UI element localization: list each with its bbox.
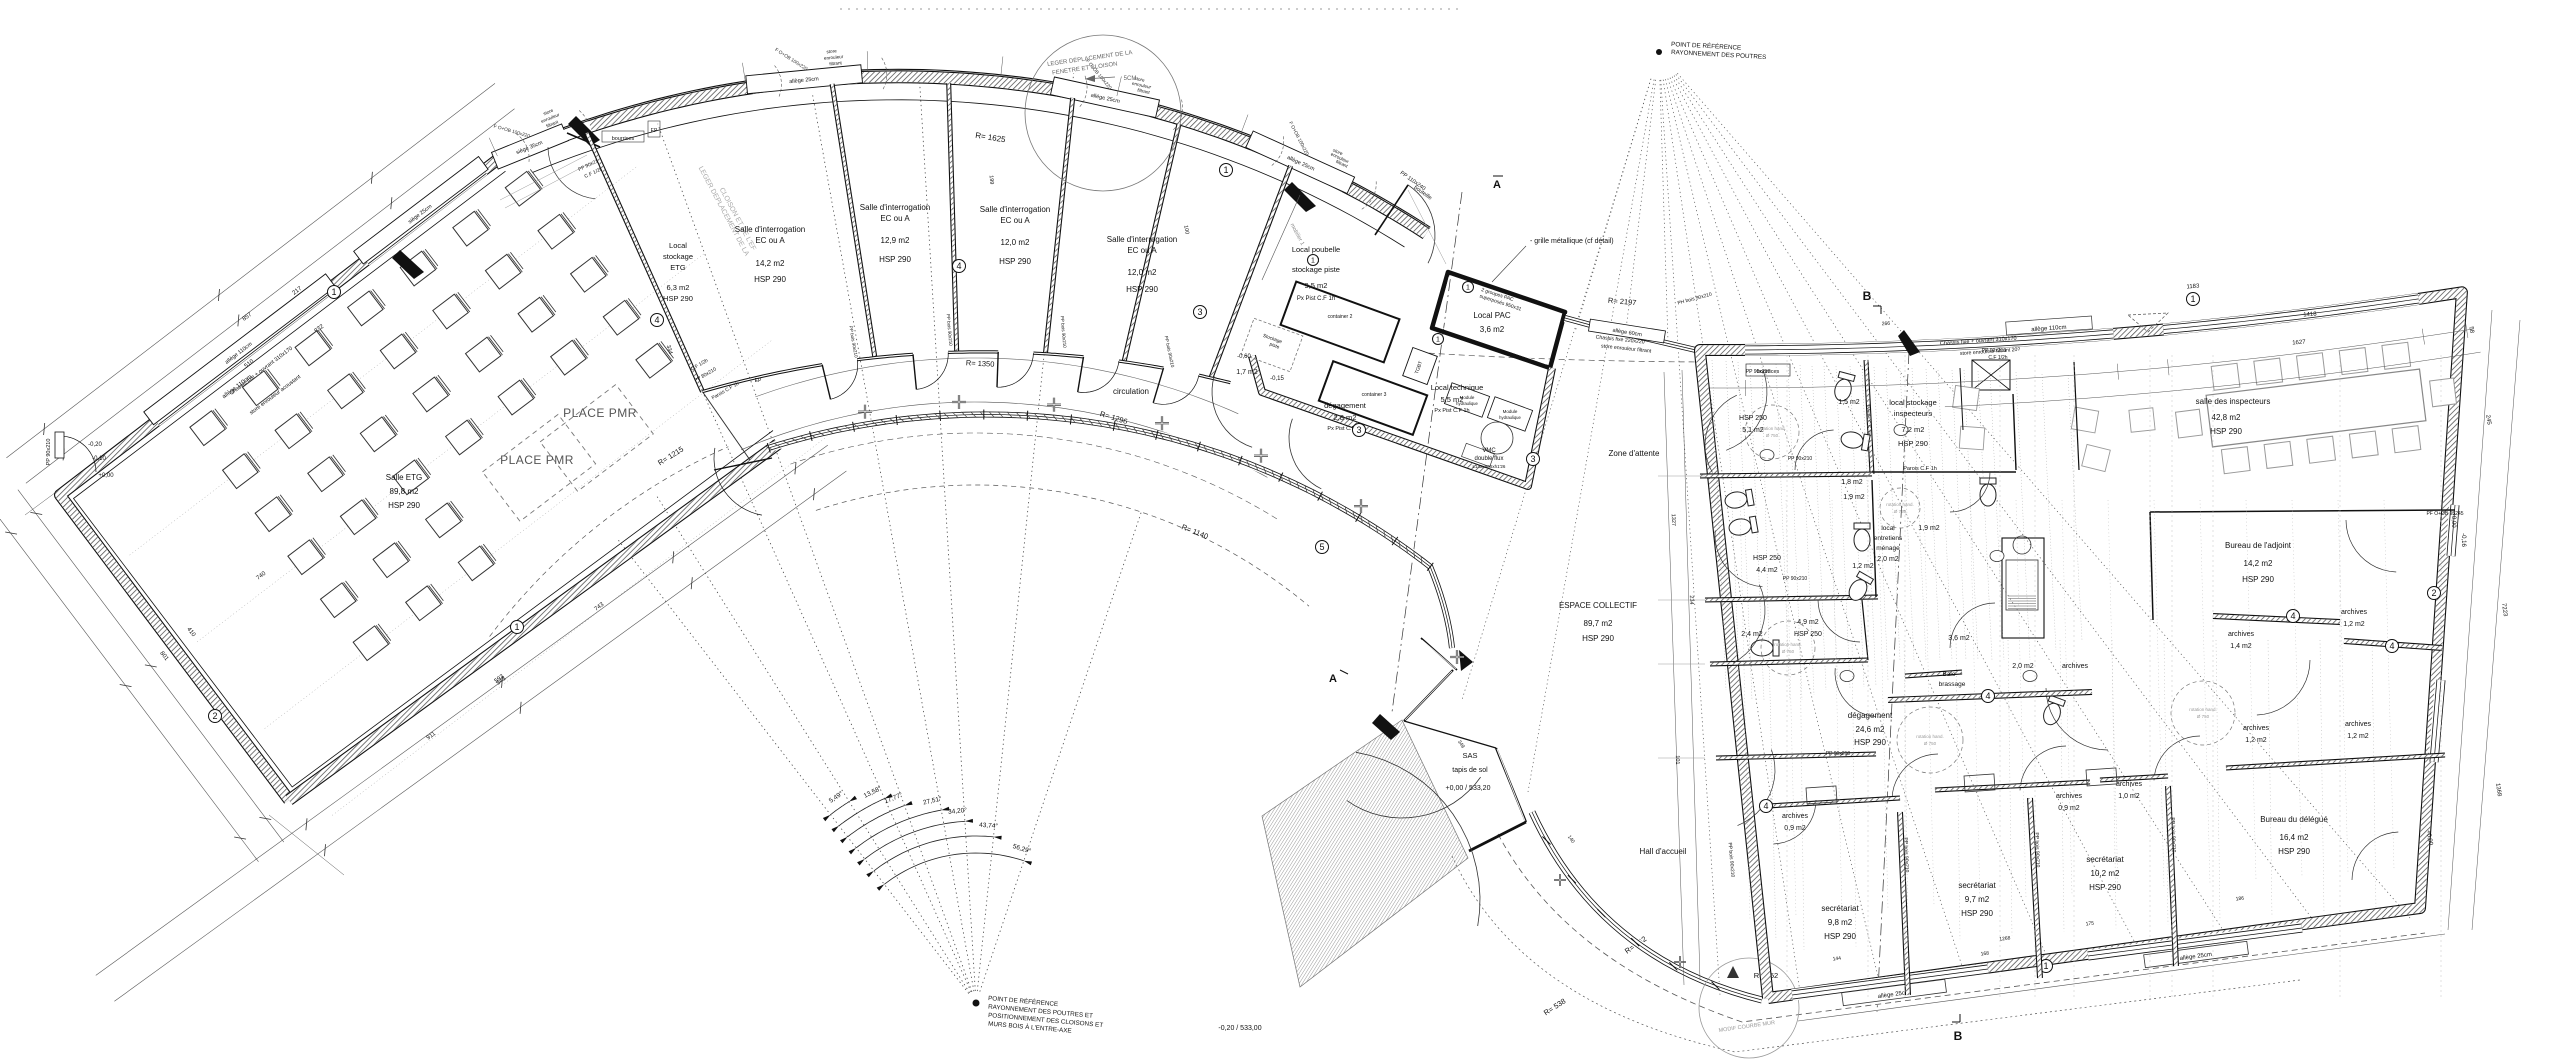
svg-text:HSP 290: HSP 290 <box>1582 634 1614 643</box>
svg-text:Baie: Baie <box>1942 671 1955 678</box>
svg-text:PLACE PMR: PLACE PMR <box>500 453 574 467</box>
svg-text:Local PAC: Local PAC <box>1473 311 1510 320</box>
svg-text:stockage piste: stockage piste <box>1292 265 1340 274</box>
svg-text:HSP 290: HSP 290 <box>754 275 786 284</box>
svg-text:Local: Local <box>669 241 687 250</box>
svg-text:2,0 m2: 2,0 m2 <box>1877 556 1899 563</box>
svg-text:+0,00: +0,00 <box>98 473 114 479</box>
svg-text:1,9 m2: 1,9 m2 <box>1843 494 1865 501</box>
svg-text:VMC: VMC <box>1482 448 1496 454</box>
svg-text:PP 90x210: PP 90x210 <box>1746 369 1771 375</box>
svg-text:4: 4 <box>2290 611 2295 621</box>
svg-text:HSP 290: HSP 290 <box>879 255 911 264</box>
svg-text:L14äx965xh1'26: L14äx965xh1'26 <box>1473 464 1506 469</box>
svg-text:Bureau de l'adjoint: Bureau de l'adjoint <box>2225 541 2292 550</box>
svg-text:-0,15: -0,15 <box>1270 376 1284 382</box>
svg-text:ménage: ménage <box>1876 545 1900 552</box>
svg-text:3: 3 <box>1530 454 1535 464</box>
svg-text:local: local <box>1881 525 1895 532</box>
svg-text:ETG: ETG <box>670 263 686 272</box>
svg-text:C.F 1/2h: C.F 1/2h <box>1988 355 2007 361</box>
svg-text:4: 4 <box>956 261 961 271</box>
svg-text:Ø 750: Ø 750 <box>2197 714 2210 719</box>
svg-text:3: 3 <box>1356 425 1361 435</box>
svg-text:EP: EP <box>755 378 762 384</box>
svg-text:HSP 290: HSP 290 <box>999 257 1031 266</box>
svg-text:1,0 m2: 1,0 m2 <box>2118 793 2140 800</box>
svg-text:144: 144 <box>1832 955 1841 962</box>
svg-text:+0,00 / 533,20: +0,00 / 533,20 <box>1446 785 1491 792</box>
svg-text:266: 266 <box>1882 321 1891 328</box>
svg-text:42,8 m2: 42,8 m2 <box>2212 413 2241 422</box>
svg-text:1627: 1627 <box>2292 339 2306 346</box>
svg-text:archives: archives <box>2062 663 2089 670</box>
svg-text:EP: EP <box>651 128 658 134</box>
svg-text:archives: archives <box>1782 813 1809 820</box>
svg-text:101: 101 <box>1674 755 1680 764</box>
svg-text:12,9 m2: 12,9 m2 <box>881 236 910 245</box>
svg-text:4,9 m2: 4,9 m2 <box>1797 619 1819 626</box>
svg-text:1418: 1418 <box>2303 311 2317 318</box>
svg-text:1: 1 <box>1223 165 1228 175</box>
svg-text:2,4 m2: 2,4 m2 <box>1741 631 1763 638</box>
svg-text:HSP 250: HSP 250 <box>1739 415 1767 422</box>
svg-text:HSP 290: HSP 290 <box>2089 883 2121 892</box>
svg-text:1: 1 <box>1311 258 1315 265</box>
svg-text:PP 90x210: PP 90x210 <box>1783 576 1808 582</box>
svg-text:tapis de sol: tapis de sol <box>1452 767 1488 774</box>
svg-text:-0,20: -0,20 <box>88 442 102 448</box>
svg-text:entretiens: entretiens <box>1874 535 1903 542</box>
svg-text:9,7 m2: 9,7 m2 <box>1965 895 1990 904</box>
svg-text:14,2 m2: 14,2 m2 <box>756 259 785 268</box>
svg-text:secrétariat: secrétariat <box>2086 855 2124 864</box>
svg-text:secrétariat: secrétariat <box>1958 881 1996 890</box>
svg-text:-0,20 / 533,00: -0,20 / 533,00 <box>1218 1025 1261 1032</box>
svg-text:Salle ETG: Salle ETG <box>386 473 422 482</box>
svg-text:24,6 m2: 24,6 m2 <box>1856 725 1885 734</box>
svg-text:container 3: container 3 <box>1362 392 1387 398</box>
svg-text:4: 4 <box>1985 691 1990 701</box>
svg-text:1,2 m2: 1,2 m2 <box>2347 733 2369 740</box>
svg-text:inspecteurs: inspecteurs <box>1894 409 1933 418</box>
svg-text:Salle d'interrogation: Salle d'interrogation <box>735 225 805 234</box>
svg-text:168: 168 <box>1980 950 1989 957</box>
svg-text:HSP 290: HSP 290 <box>1961 909 1993 918</box>
svg-text:Ø 750: Ø 750 <box>1894 509 1907 514</box>
svg-text:0,9 m2: 0,9 m2 <box>2058 805 2080 812</box>
svg-text:PP 90x210: PP 90x210 <box>1982 348 2007 354</box>
svg-text:2,8 m2: 2,8 m2 <box>1334 413 1357 422</box>
svg-text:B: B <box>1863 289 1872 303</box>
svg-text:1,2 m2: 1,2 m2 <box>1852 563 1874 570</box>
svg-text:12,0 m2: 12,0 m2 <box>1001 238 1030 247</box>
svg-text:Px Pist C.F 1h: Px Pist C.F 1h <box>1434 408 1469 414</box>
svg-text:PP bois 90x210: PP bois 90x210 <box>2033 832 2040 867</box>
svg-text:archives: archives <box>2341 609 2368 616</box>
svg-text:HSP 250: HSP 250 <box>1753 555 1781 562</box>
svg-text:brassage: brassage <box>1939 681 1966 688</box>
svg-text:1183: 1183 <box>2186 284 2200 291</box>
svg-text:1,4 m2: 1,4 m2 <box>2230 643 2252 650</box>
svg-text:- grille métallique (cf détail: - grille métallique (cf détail) <box>1530 238 1614 245</box>
svg-text:Parois C.F 1h: Parois C.F 1h <box>1903 466 1937 472</box>
svg-text:Zone d'attente: Zone d'attente <box>1609 449 1660 458</box>
svg-text:1,8 m2: 1,8 m2 <box>1841 479 1863 486</box>
svg-text:HSP 290: HSP 290 <box>2242 575 2274 584</box>
svg-text:1: 1 <box>1466 285 1470 292</box>
svg-text:4: 4 <box>2389 641 2394 651</box>
svg-text:1: 1 <box>1436 337 1440 344</box>
svg-text:10,2 m2: 10,2 m2 <box>2091 869 2120 878</box>
svg-text:HSP 290: HSP 290 <box>1824 932 1856 941</box>
svg-text:PLACE PMR: PLACE PMR <box>563 406 637 420</box>
svg-text:1,9 m2: 1,9 m2 <box>1918 525 1940 532</box>
svg-text:2: 2 <box>212 711 217 721</box>
svg-text:1: 1 <box>2190 294 2195 304</box>
svg-text:archives: archives <box>2345 721 2372 728</box>
svg-text:+0,00: +0,00 <box>2450 512 2456 528</box>
svg-text:4,4 m2: 4,4 m2 <box>1756 567 1778 574</box>
svg-text:R= 1350: R= 1350 <box>966 358 995 368</box>
svg-text:1,5 m2: 1,5 m2 <box>1838 399 1860 406</box>
svg-text:1,2 m2: 1,2 m2 <box>2245 737 2267 744</box>
svg-text:Salle d'interrogation: Salle d'interrogation <box>980 205 1050 214</box>
svg-text:5: 5 <box>1319 542 1324 552</box>
svg-text:186: 186 <box>2235 895 2244 902</box>
svg-text:local stockage: local stockage <box>1889 398 1937 407</box>
svg-text:14,2 m2: 14,2 m2 <box>2244 559 2273 568</box>
svg-text:PP bois 90x210: PP bois 90x210 <box>1902 837 1909 872</box>
svg-text:Module: Module <box>1503 409 1518 414</box>
svg-text:HSP 290: HSP 290 <box>388 501 420 510</box>
svg-text:HSP 290: HSP 290 <box>1126 285 1158 294</box>
svg-text:archives: archives <box>2243 725 2270 732</box>
svg-text:stockage: stockage <box>663 252 693 261</box>
svg-text:6,3 m2: 6,3 m2 <box>667 283 690 292</box>
svg-text:archives: archives <box>2056 793 2083 800</box>
svg-text:Local technique: Local technique <box>1431 383 1484 392</box>
svg-text:2: 2 <box>2431 588 2436 598</box>
svg-text:rotation hand.: rotation hand. <box>1886 502 1914 507</box>
svg-text:HSP 290: HSP 290 <box>1898 439 1928 448</box>
svg-text:ESPACE COLLECTIF: ESPACE COLLECTIF <box>1559 601 1637 610</box>
svg-text:HSP 290: HSP 290 <box>663 294 693 303</box>
svg-text:3,6 m2: 3,6 m2 <box>1480 325 1505 334</box>
svg-text:EC ou A: EC ou A <box>880 214 910 223</box>
svg-text:175: 175 <box>2085 920 2094 927</box>
svg-text:store: store <box>826 48 837 54</box>
svg-text:Px Pist C.F 1h: Px Pist C.F 1h <box>1297 296 1335 302</box>
svg-text:rotation hand.: rotation hand. <box>2189 707 2217 712</box>
svg-text:salle des inspecteurs: salle des inspecteurs <box>2196 397 2271 406</box>
svg-text:archives: archives <box>2116 781 2143 788</box>
svg-text:circulation: circulation <box>1113 387 1149 396</box>
svg-text:A: A <box>1493 179 1501 191</box>
svg-text:3,6 m2: 3,6 m2 <box>1948 635 1970 642</box>
svg-text:89,8 m2: 89,8 m2 <box>390 487 419 496</box>
svg-text:4: 4 <box>654 315 659 325</box>
svg-text:5,1 m2: 5,1 m2 <box>1742 427 1764 434</box>
svg-text:16,4 m2: 16,4 m2 <box>2280 833 2309 842</box>
svg-text:5,5 m2: 5,5 m2 <box>1441 395 1464 404</box>
svg-text:HSP 290: HSP 290 <box>2210 427 2242 436</box>
svg-text:1: 1 <box>331 287 336 297</box>
svg-text:Ø 750: Ø 750 <box>1782 649 1795 654</box>
svg-text:PF O+OB 95245: PF O+OB 95245 <box>2426 511 2463 517</box>
svg-text:Salle d'interrogation: Salle d'interrogation <box>1107 235 1177 244</box>
svg-text:PP 90x210: PP 90x210 <box>46 439 52 466</box>
svg-text:EC ou A: EC ou A <box>755 236 785 245</box>
svg-text:EC ou A: EC ou A <box>1000 216 1030 225</box>
svg-text:HSP 290: HSP 290 <box>2278 847 2310 856</box>
svg-text:archives: archives <box>2228 631 2255 638</box>
svg-text:3: 3 <box>1197 307 1202 317</box>
svg-text:5CM: 5CM <box>1124 76 1137 82</box>
svg-text:4: 4 <box>1763 801 1768 811</box>
svg-text:hydraulique: hydraulique <box>1499 415 1521 420</box>
svg-text:1: 1 <box>2043 961 2048 971</box>
svg-text:PP bois 90x210: PP bois 90x210 <box>2169 817 2176 852</box>
svg-text:B: B <box>1954 1029 1963 1043</box>
svg-text:1,7 m2: 1,7 m2 <box>1236 369 1258 376</box>
svg-text:1327: 1327 <box>1670 514 1676 526</box>
svg-text:1,2 m2: 1,2 m2 <box>2343 621 2365 628</box>
svg-text:dégagement: dégagement <box>1848 711 1893 720</box>
svg-text:-0,60: -0,60 <box>1237 354 1251 360</box>
svg-text:-0,10: -0,10 <box>92 456 106 462</box>
svg-text:199: 199 <box>988 175 995 185</box>
svg-text:secrétariat: secrétariat <box>1821 904 1859 913</box>
svg-text:HSP 250: HSP 250 <box>1794 631 1822 638</box>
svg-text:HSP 290: HSP 290 <box>1854 738 1886 747</box>
svg-text:EC ou A: EC ou A <box>1127 246 1157 255</box>
svg-text:Ø 750: Ø 750 <box>1766 433 1779 438</box>
svg-text:rotation hand.: rotation hand. <box>1774 642 1802 647</box>
svg-text:PP 90x210: PP 90x210 <box>1788 456 1813 462</box>
svg-text:43,74°: 43,74° <box>979 821 999 830</box>
svg-text:A: A <box>1329 673 1337 685</box>
svg-text:SAS: SAS <box>1462 751 1477 760</box>
svg-text:bourrices: bourrices <box>612 136 635 142</box>
svg-text:container 2: container 2 <box>1328 314 1353 320</box>
svg-text:dégagement: dégagement <box>1324 401 1367 410</box>
svg-text:12,0 m2: 12,0 m2 <box>1128 268 1157 277</box>
svg-text:9,8 m2: 9,8 m2 <box>1828 918 1853 927</box>
svg-text:Salle d'interrogation: Salle d'interrogation <box>860 203 930 212</box>
svg-text:double flux: double flux <box>1474 456 1503 462</box>
svg-text:Local poubelle: Local poubelle <box>1292 245 1340 254</box>
svg-text:2,0 m2: 2,0 m2 <box>2012 663 2034 670</box>
svg-text:89,7 m2: 89,7 m2 <box>1584 619 1613 628</box>
svg-text:1: 1 <box>514 622 519 632</box>
svg-text:-0,16: -0,16 <box>2460 533 2466 547</box>
svg-text:Bureau du délégué: Bureau du délégué <box>2260 815 2328 824</box>
